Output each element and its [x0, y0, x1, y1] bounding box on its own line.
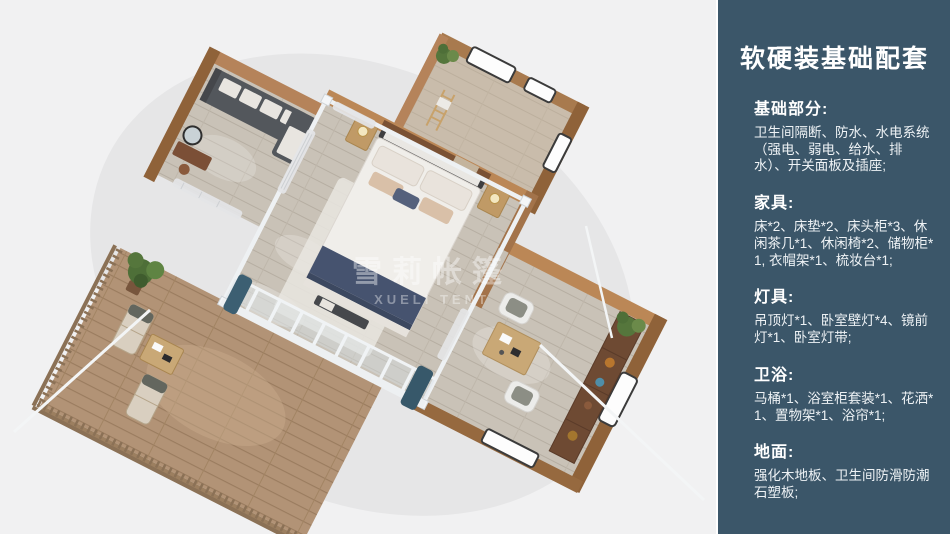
floorplan-render: 雪莉帐篷 XUELI TENT [0, 0, 716, 534]
package-sidebar: 软硬装基础配套 基础部分: 卫生间隔断、防水、水电系统（强电、弱电、给水、排水）… [718, 0, 950, 534]
slide: 雪莉帐篷 XUELI TENT 软硬装基础配套 基础部分: 卫生间隔断、防水、水… [0, 0, 950, 534]
section-body: 卫生间隔断、防水、水电系统（强电、弱电、给水、排水）、开关面板及插座; [754, 125, 934, 175]
section-body: 吊顶灯*1、卧室壁灯*4、镜前灯*1、卧室灯带; [754, 313, 934, 346]
watermark-cn-text: 雪莉帐篷 [352, 256, 512, 289]
section-heading: 基础部分: [754, 100, 934, 120]
section-furniture: 家具: 床*2、床垫*2、床头柜*3、休闲茶几*1、休闲椅*2、储物柜*1, 衣… [754, 194, 934, 269]
section-heading: 家具: [754, 194, 934, 214]
watermark: 雪莉帐篷 XUELI TENT [352, 256, 512, 307]
sidebar-title: 软硬装基础配套 [740, 44, 934, 74]
section-body: 马桶*1、浴室柜套装*1、花洒*1、置物架*1、浴帘*1; [754, 391, 934, 424]
section-lighting: 灯具: 吊顶灯*1、卧室壁灯*4、镜前灯*1、卧室灯带; [754, 288, 934, 346]
section-body: 强化木地板、卫生间防滑防潮石塑板; [754, 468, 934, 501]
watermark-en-text: XUELI TENT [374, 292, 490, 307]
section-heading: 灯具: [754, 288, 934, 308]
section-heading: 地面: [754, 443, 934, 463]
section-body: 床*2、床垫*2、床头柜*3、休闲茶几*1、休闲椅*2、储物柜*1, 衣帽架*1… [754, 219, 934, 269]
section-flooring: 地面: 强化木地板、卫生间防滑防潮石塑板; [754, 443, 934, 501]
floorplan-svg: 雪莉帐篷 XUELI TENT [0, 0, 716, 534]
section-heading: 卫浴: [754, 366, 934, 386]
section-bathroom: 卫浴: 马桶*1、浴室柜套装*1、花洒*1、置物架*1、浴帘*1; [754, 366, 934, 424]
section-basics: 基础部分: 卫生间隔断、防水、水电系统（强电、弱电、给水、排水）、开关面板及插座… [754, 100, 934, 175]
